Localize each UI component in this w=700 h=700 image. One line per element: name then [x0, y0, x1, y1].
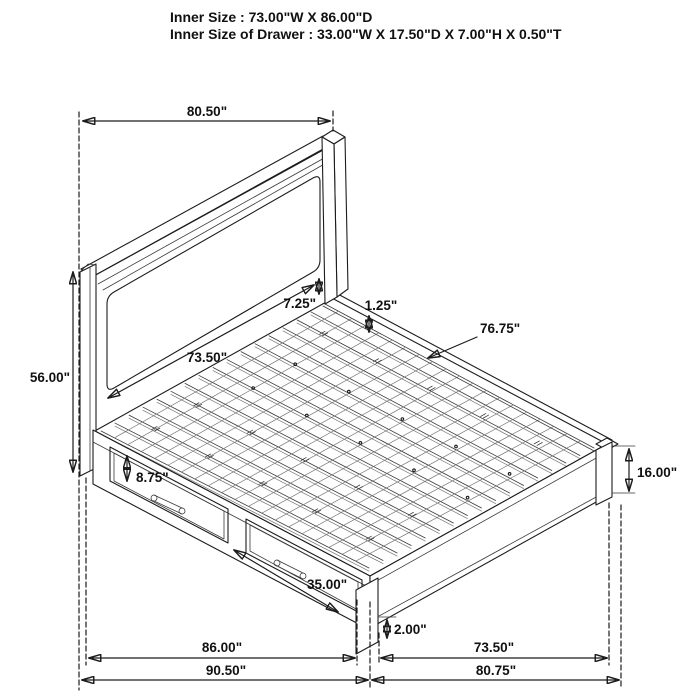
- label-headboard-width: 80.50": [187, 104, 227, 119]
- label-floor-clearance: 2.00": [394, 622, 427, 637]
- front-left-leg: [356, 578, 378, 654]
- label-platform-height: 16.00": [637, 465, 677, 480]
- label-drawer-width: 35.00": [307, 577, 347, 592]
- label-frame-depth: 86.00": [202, 640, 242, 655]
- label-footboard-inner-width: 73.50": [474, 640, 514, 655]
- label-drawer-height: 8.75": [136, 470, 169, 485]
- header-line-1: Inner Size : 73.00"W X 86.00"D: [170, 9, 372, 25]
- label-overall-width: 80.75": [476, 663, 516, 678]
- right-post-side-face: [322, 137, 337, 304]
- label-overall-depth: 90.50": [206, 663, 246, 678]
- header-line-2: Inner Size of Drawer : 33.00"W X 17.50"D…: [170, 26, 562, 42]
- label-slat-thickness: 1.25": [365, 298, 398, 313]
- diagram-canvas: Inner Size : 73.00"W X 86.00"D Inner Siz…: [0, 0, 700, 700]
- label-panel-width: 73.50": [187, 350, 227, 365]
- label-headboard-height: 56.00": [30, 370, 70, 385]
- front-right-leg: [596, 442, 612, 505]
- bed-dimension-diagram: Inner Size : 73.00"W X 86.00"D Inner Siz…: [0, 0, 700, 700]
- label-slat-length: 76.75": [480, 321, 520, 336]
- label-panel-gap: 7.25": [283, 296, 316, 311]
